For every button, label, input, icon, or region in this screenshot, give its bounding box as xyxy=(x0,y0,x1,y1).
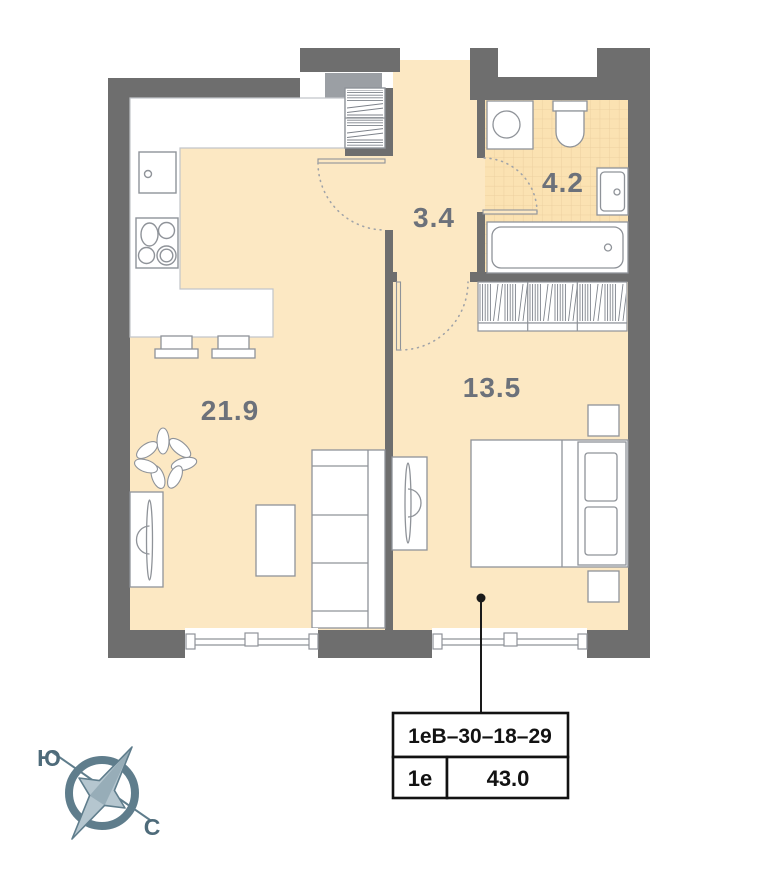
wall-door-nib xyxy=(385,272,397,282)
washing-machine xyxy=(487,101,533,149)
unit-card: 1еВ–30–18–29 1е 43.0 xyxy=(393,713,568,798)
bathtub xyxy=(487,222,628,273)
bed xyxy=(471,440,628,567)
wall-right xyxy=(628,98,650,658)
unit-code: 1еВ–30–18–29 xyxy=(408,725,552,748)
bar-stool xyxy=(161,336,192,350)
door-leaf-bedroom xyxy=(397,282,401,350)
wall-bath-left-upper xyxy=(477,100,485,158)
nightstand xyxy=(588,405,619,436)
sofa xyxy=(312,450,385,628)
compass-icon: Ю С xyxy=(37,745,160,840)
compass-north-label: С xyxy=(144,814,161,840)
nightstand xyxy=(588,571,619,602)
wall-top-right xyxy=(597,48,650,100)
living-door-opening xyxy=(385,156,393,230)
floor-plan-page: 21.9 3.4 4.2 13.5 1еВ–30–18–29 1е 43.0 Ю… xyxy=(0,0,760,891)
wall-partition xyxy=(385,230,393,630)
room-label-living: 21.9 xyxy=(201,395,260,426)
hallway-closet xyxy=(345,88,385,148)
bath-door-opening xyxy=(477,158,485,212)
door-leaf-bathroom xyxy=(483,210,537,214)
wall-closet-right xyxy=(385,88,393,156)
bar-stool-back xyxy=(212,349,255,358)
bedroom-door-opening xyxy=(397,272,470,282)
window-bedroom xyxy=(432,628,587,661)
wall-bath-left-lower xyxy=(477,212,485,273)
bar-stool-back xyxy=(155,349,198,358)
window-handle-icon xyxy=(504,633,517,646)
stove xyxy=(136,218,178,268)
room-label-bathroom: 4.2 xyxy=(542,167,584,198)
hallway-floor xyxy=(393,72,477,282)
wall-top-center xyxy=(300,48,400,72)
coffee-table xyxy=(256,505,295,576)
unit-type: 1е xyxy=(408,766,432,791)
bedroom-wardrobe xyxy=(478,282,627,331)
wall-left xyxy=(108,78,130,658)
room-label-bedroom: 13.5 xyxy=(463,372,522,403)
toilet xyxy=(553,101,587,147)
wall-top-left xyxy=(108,78,300,98)
wall-bath-stub-left xyxy=(470,48,498,100)
unit-area: 43.0 xyxy=(487,766,530,791)
entry-nook-floor xyxy=(400,60,472,74)
wall-bath-top xyxy=(498,77,598,100)
bathroom-sink xyxy=(597,168,628,215)
door-leaf-living xyxy=(318,159,385,163)
bar-stool xyxy=(218,336,249,350)
room-label-hallway: 3.4 xyxy=(413,202,455,233)
floor-plan-svg: 21.9 3.4 4.2 13.5 1еВ–30–18–29 1е 43.0 Ю… xyxy=(0,0,760,891)
window-living xyxy=(185,628,318,661)
compass-south-label: Ю xyxy=(37,745,61,771)
window-handle-icon xyxy=(245,633,258,646)
